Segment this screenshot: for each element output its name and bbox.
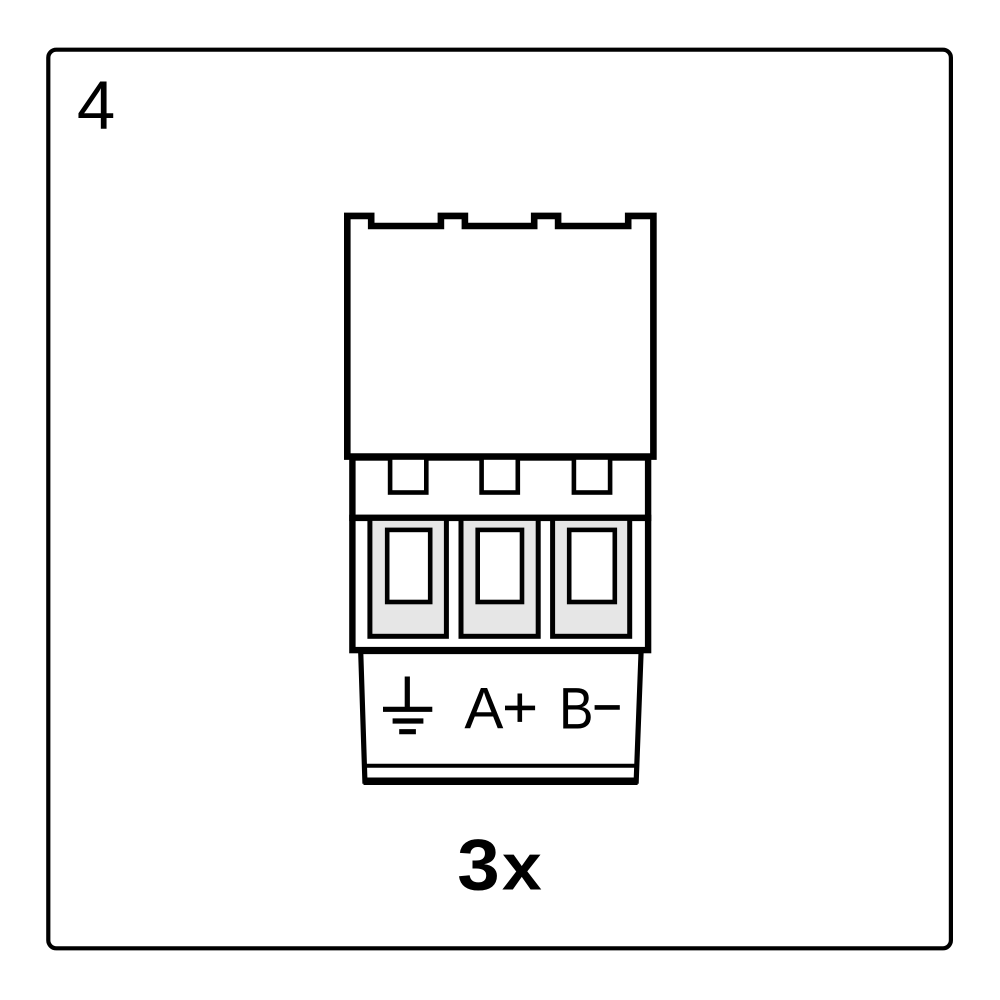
svg-text:3: 3 xyxy=(457,824,499,905)
svg-text:x: x xyxy=(502,830,542,904)
svg-text:B: B xyxy=(559,675,593,741)
svg-text:4: 4 xyxy=(77,66,115,143)
svg-text:A: A xyxy=(464,676,503,741)
